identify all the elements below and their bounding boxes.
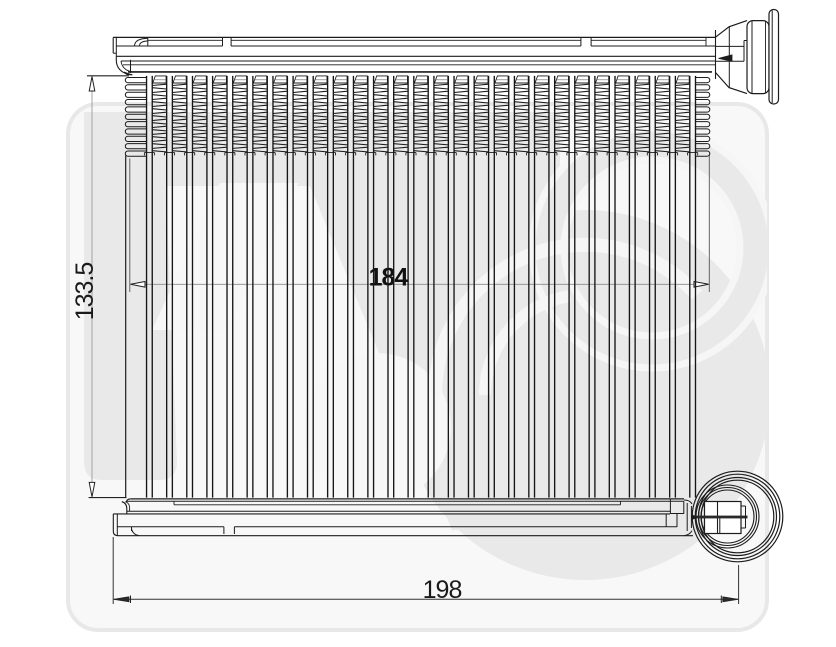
svg-text:198: 198 <box>423 576 462 604</box>
svg-text:133.5: 133.5 <box>71 263 99 321</box>
